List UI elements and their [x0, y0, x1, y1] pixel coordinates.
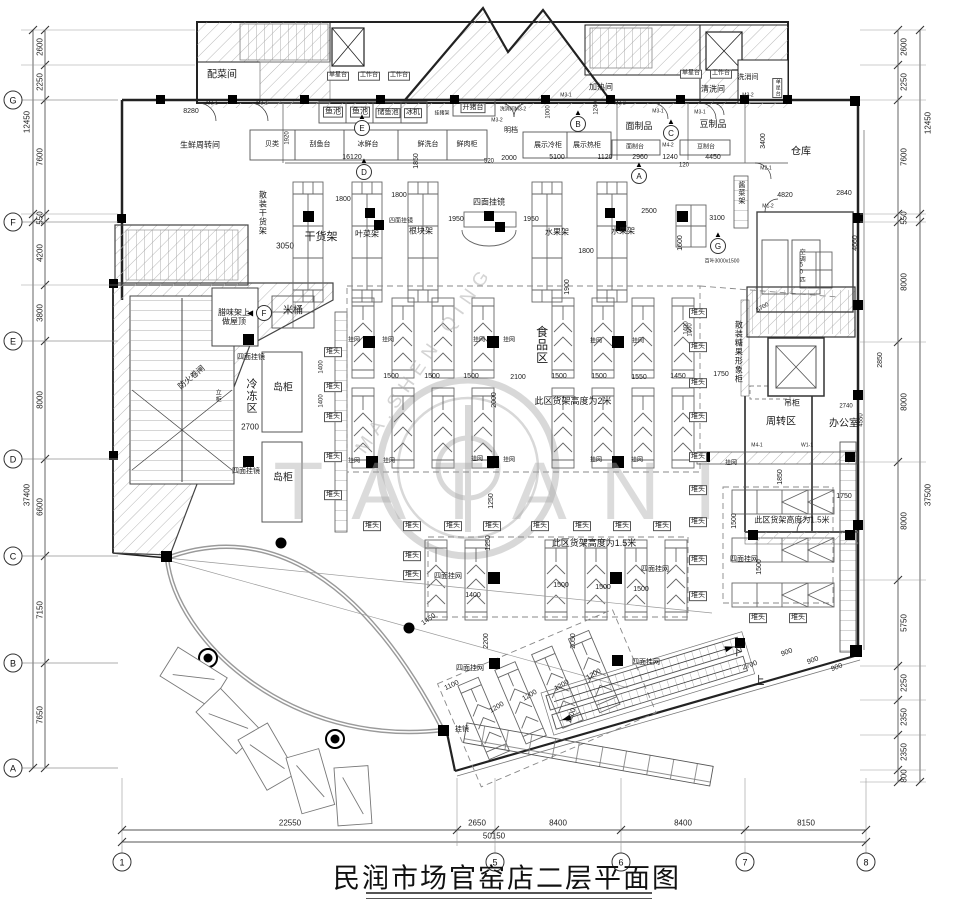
plan-label: M2-1 — [760, 166, 771, 172]
plan-label: 挂网 — [348, 338, 360, 345]
plan-label: 3400 — [760, 133, 768, 149]
plan-label: 1800 — [391, 192, 407, 200]
plan-label: 四面挂网 — [640, 566, 670, 574]
dim-label: 6600 — [36, 498, 45, 516]
view-marker-D: D▲ — [356, 164, 372, 180]
plan-label: 面制台 — [626, 145, 644, 152]
plan-label: 520 — [484, 159, 494, 166]
plan-label: 岛柜 — [273, 473, 293, 484]
plan-label: 1400 — [465, 592, 481, 600]
plan-label: 岛柜 — [273, 383, 293, 394]
plan-label: 堆头 — [689, 517, 707, 527]
plan-label: M3-1 — [256, 101, 267, 107]
plan-label: 堆头 — [403, 521, 421, 531]
plan-label: 堆头 — [324, 452, 342, 462]
plan-label: 堆头 — [689, 378, 707, 388]
plan-label: 1920 — [285, 131, 292, 144]
dim-label: 4200 — [36, 244, 45, 262]
plan-label: 刮鱼台 — [310, 141, 331, 149]
axis-bubble-F: F — [4, 213, 23, 232]
plan-label: 水果架 — [545, 229, 569, 238]
view-marker-F: F◀ — [256, 305, 272, 321]
plan-label: 堆头 — [689, 485, 707, 495]
marker-arrow-icon: ▲ — [714, 230, 722, 239]
plan-label: 四面挂镜 — [389, 219, 413, 226]
plan-label: 3050 — [276, 243, 294, 252]
axis-bubble-C: C — [4, 547, 23, 566]
drawing-title: 民润市场官窑店二层平面图 — [333, 857, 681, 896]
plan-label: 1900 — [564, 279, 572, 295]
plan-label: 4820 — [777, 192, 793, 200]
dim-label: 7600 — [900, 148, 909, 166]
plan-label: 冰机 — [404, 108, 422, 118]
plan-label: 1120 — [597, 154, 612, 162]
plan-label: 酱菜架 — [737, 181, 745, 205]
plan-label: 2050 — [570, 633, 578, 649]
plan-label: 配菜间 — [207, 70, 237, 81]
plan-label: 四面挂镜 — [237, 354, 265, 362]
plan-label: 米桶 — [283, 306, 303, 317]
plan-label: 下 — [732, 646, 743, 658]
dim-label: 5750 — [900, 614, 909, 632]
plan-label: 挂网 — [590, 458, 602, 465]
plan-label: M3-2 — [742, 93, 753, 99]
plan-label: 储鱼池 — [376, 108, 401, 118]
plan-label: 堆头 — [573, 521, 591, 531]
plan-label: 1000 — [546, 105, 553, 118]
plan-label: M4-2 — [662, 143, 673, 149]
plan-label: 挂网 — [471, 457, 483, 464]
floor-plan-canvas: 民润市场官窑店二层平面图 TATANI MA.SHEN QING 配菜间单星台工… — [0, 0, 960, 910]
plan-label: 清洗间 — [701, 86, 725, 95]
plan-label: 叶菜架 — [355, 231, 379, 240]
plan-label: 四面挂网 — [632, 659, 660, 667]
plan-label: 贝类 — [265, 141, 279, 149]
dim-label: 37500 — [924, 484, 933, 506]
dim-label: 2250 — [900, 674, 909, 692]
plan-label: 四面挂镜 — [232, 468, 260, 476]
plan-label: 1500 — [591, 373, 607, 381]
dim-label: 3800 — [36, 304, 45, 322]
plan-label: 2700 — [241, 424, 259, 433]
plan-label: 堆头 — [613, 521, 631, 531]
plan-label: 堆头 — [483, 521, 501, 531]
plan-label: 面制品 — [625, 122, 652, 132]
dim-label: 8400 — [549, 819, 567, 828]
plan-label: 挂镜 — [455, 726, 469, 734]
plan-label: 上 — [754, 675, 765, 687]
plan-label: M3-1 — [652, 109, 663, 115]
plan-label: 散装干货架 — [258, 191, 267, 236]
plan-label: 水果架 — [611, 228, 635, 237]
dim-label: 2250 — [36, 73, 45, 91]
plan-label: 根块架 — [409, 228, 433, 237]
plan-label: 16120 — [342, 154, 361, 162]
axis-bubble-1: 1 — [113, 853, 132, 872]
plan-label: 1240 — [594, 101, 601, 114]
plan-label: 堆头 — [531, 521, 549, 531]
plan-label: 120 — [679, 163, 689, 170]
plan-label: 挂网 — [348, 459, 360, 466]
dim-label: 8000 — [900, 393, 909, 411]
plan-label: 豆制台 — [697, 145, 715, 152]
plan-label: 腊味架上做屋顶 — [217, 309, 251, 327]
plan-label: 四面挂网 — [455, 665, 485, 673]
marker-arrow-icon: ▲ — [358, 112, 366, 121]
dim-label: 550 — [36, 211, 45, 224]
plan-label: M1-2 — [762, 204, 773, 210]
plan-label: 1800 — [335, 196, 351, 204]
plan-label: 挂猪架 — [434, 111, 449, 117]
view-marker-G: G▲ — [710, 238, 726, 254]
dim-total: 50150 — [483, 832, 505, 841]
dim-label: 2650 — [468, 819, 486, 828]
plan-label: 工作台 — [710, 70, 732, 79]
plan-label: 单星台 — [327, 72, 349, 81]
plan-label: 2850 — [877, 352, 885, 368]
dim-label: 550 — [900, 211, 909, 224]
axis-bubble-G: G — [4, 91, 23, 110]
dim-label: 8000 — [900, 512, 909, 530]
plan-label: 2740 — [839, 404, 852, 411]
marker-arrow-icon: ▲ — [574, 108, 582, 117]
plan-label: 堆头 — [789, 613, 807, 623]
plan-label: 四面挂网 — [433, 573, 463, 581]
marker-arrow-icon: ◀ — [247, 309, 253, 318]
dim-label: 12450 — [924, 112, 933, 134]
plan-label: 堆头 — [324, 347, 342, 357]
dim-label: 8150 — [797, 819, 815, 828]
plan-label: 生鲜周转间 — [180, 142, 220, 151]
plan-label: 挂网 — [590, 339, 602, 346]
plan-label: 2100 — [510, 374, 526, 382]
plan-label: 工作台 — [388, 72, 410, 81]
plan-label: 堆头 — [324, 490, 342, 500]
plan-label: 4450 — [705, 154, 721, 162]
plan-label: M4-1 — [751, 443, 762, 449]
dim-label: 8400 — [674, 819, 692, 828]
plan-label: 洗消间M3-2 — [500, 107, 526, 113]
plan-label: 四面挂镜 — [473, 199, 505, 208]
plan-label: 挂网 — [503, 338, 515, 345]
plan-label: 堆头 — [324, 382, 342, 392]
plan-label: 空调50匹 — [798, 249, 805, 284]
view-marker-A: A▲ — [631, 168, 647, 184]
plan-label: 四面挂网 — [729, 556, 759, 564]
plan-label: 1750 — [836, 493, 852, 501]
view-marker-E: E▲ — [354, 120, 370, 136]
plan-label: 2840 — [836, 190, 852, 198]
plan-label: 1500 — [424, 373, 440, 381]
plan-label: 1750 — [713, 371, 729, 379]
plan-label: 8280 — [183, 108, 199, 116]
plan-label: 1600 — [677, 235, 685, 251]
plan-label: 堆头 — [689, 412, 707, 422]
dim-label: 2350 — [900, 743, 909, 761]
plan-label: 1240 — [662, 154, 678, 162]
plan-label: 堆头 — [363, 521, 381, 531]
plan-label: 1500 — [756, 559, 764, 575]
plan-label: 4550 — [859, 413, 866, 426]
plan-label: 单星台 — [680, 70, 702, 79]
plan-label: 挂网 — [473, 338, 485, 345]
plan-label: 4660 — [852, 235, 860, 251]
plan-label: 1550 — [631, 374, 647, 382]
plan-label: 散装糖果形象柜 — [734, 321, 743, 384]
dim-label: 7600 — [36, 148, 45, 166]
dim-label: 12450 — [23, 111, 32, 133]
plan-label: 1500 — [463, 373, 479, 381]
plan-label: 3100 — [709, 215, 725, 223]
plan-label: 1950 — [523, 216, 539, 224]
plan-label: 此区货架高度为2米 — [534, 397, 611, 407]
dim-label: 2600 — [36, 38, 45, 56]
plan-label: 挂网 — [503, 458, 515, 465]
view-marker-C: C▲ — [663, 125, 679, 141]
dim-label: 2600 — [900, 38, 909, 56]
plan-label: 1500 — [553, 582, 569, 590]
plan-label: 堆头 — [653, 521, 671, 531]
plan-label: 开猪台 — [461, 103, 486, 113]
plan-label: 1500 — [633, 586, 649, 594]
plan-label: 堆头 — [324, 412, 342, 422]
plan-label: 1250 — [485, 535, 493, 551]
dim-label: 7650 — [36, 706, 45, 724]
axis-bubble-E: E — [4, 332, 23, 351]
plan-label: 1250 — [488, 493, 496, 509]
plan-label: 吊柜 — [784, 400, 800, 409]
dim-label: 22550 — [279, 819, 301, 828]
dim-label: 8000 — [36, 391, 45, 409]
plan-label: W1-1 — [801, 443, 813, 449]
marker-arrow-icon: ▲ — [360, 156, 368, 165]
axis-bubble-B: B — [4, 654, 23, 673]
dim-label: 2350 — [900, 708, 909, 726]
plan-label: 1850 — [777, 469, 785, 485]
plan-label: 立柜 — [214, 389, 221, 403]
axis-bubble-A: A — [4, 759, 23, 778]
plan-label: 1500 — [383, 373, 399, 381]
plan-label: 挂网 — [631, 458, 643, 465]
plan-label: 1850 — [413, 153, 421, 169]
plan-label: 2000 — [491, 392, 499, 408]
plan-label: 2500 — [641, 208, 657, 216]
plan-label: M3-2 — [491, 118, 502, 124]
plan-label: 堆头 — [444, 521, 462, 531]
plan-label: 单星台 — [772, 78, 782, 98]
plan-label: 堆头 — [689, 591, 707, 601]
title-underline — [366, 892, 652, 899]
plan-label: 周转区 — [766, 417, 796, 428]
axis-bubble-8: 8 — [857, 853, 876, 872]
plan-label: 冷冻区 — [245, 378, 257, 414]
plan-label: 1400 — [319, 394, 326, 407]
plan-label: 挂网 — [632, 339, 644, 346]
plan-label: 堆头 — [689, 452, 707, 462]
view-marker-B: B▲ — [570, 116, 586, 132]
dim-label: 37400 — [23, 484, 32, 506]
plan-label: 堆头 — [403, 551, 421, 561]
plan-label: 堆头 — [689, 555, 707, 565]
plan-label: 仓库 — [791, 147, 811, 158]
plan-label: 挂网 — [382, 338, 394, 345]
plan-label: M3-1 — [560, 93, 571, 99]
plan-label: 此区货架高度为1.5米 — [754, 517, 829, 526]
plan-label: 展示冷柜 — [534, 142, 562, 150]
plan-label: 2000 — [501, 155, 517, 163]
plan-label: 1800 — [578, 248, 594, 256]
plan-label: 堆头 — [749, 613, 767, 623]
plan-label: 1400 — [688, 323, 695, 336]
plan-label: 百叶3000x1500 — [705, 259, 740, 265]
plan-label: 堆头 — [689, 308, 707, 318]
plan-label: 堆头 — [689, 342, 707, 352]
plan-label: 食品区 — [534, 326, 547, 365]
plan-label: 豆制品 — [699, 120, 726, 130]
marker-arrow-icon: ▲ — [667, 117, 675, 126]
plan-label: 冰鲜台 — [358, 141, 379, 149]
plan-label: 鱼池 — [323, 107, 343, 118]
plan-label: 挂网 — [725, 461, 737, 468]
plan-label: 干货架 — [305, 231, 338, 243]
plan-label: M3-1 — [206, 101, 217, 107]
axis-bubble-7: 7 — [736, 853, 755, 872]
axis-bubble-D: D — [4, 450, 23, 469]
plan-label: 1500 — [595, 584, 611, 592]
plan-label: 堆头 — [403, 570, 421, 580]
plan-label: 此区货架高度为1.5米 — [552, 539, 637, 549]
plan-label: 1500 — [551, 373, 567, 381]
dim-label: 2250 — [900, 73, 909, 91]
plan-label: 1450 — [670, 373, 686, 381]
plan-label: 展示热柜 — [573, 142, 601, 150]
plan-label: 办公室 — [829, 419, 859, 430]
plan-label: 鲜肉柜 — [457, 141, 478, 149]
plan-label: 鲜洗台 — [418, 141, 439, 149]
plan-label: 加热间 — [589, 84, 613, 93]
dim-label: 800 — [900, 769, 909, 782]
plan-label: 1400 — [319, 360, 326, 373]
plan-label: 挂网 — [383, 459, 395, 466]
plan-label: 5100 — [549, 154, 565, 162]
plan-label: M3-2 — [614, 101, 625, 107]
marker-arrow-icon: ▲ — [635, 160, 643, 169]
plan-label: 1500 — [731, 513, 739, 529]
plan-label: M3-1 — [694, 110, 705, 116]
plan-label: 明档 — [504, 127, 518, 135]
plan-label: 工作台 — [358, 72, 380, 81]
plan-label: 洗消间 — [738, 74, 759, 82]
plan-label: 2200 — [483, 633, 491, 649]
dim-label: 8000 — [900, 273, 909, 291]
dim-label: 7150 — [36, 601, 45, 619]
plan-label: 1950 — [448, 216, 464, 224]
